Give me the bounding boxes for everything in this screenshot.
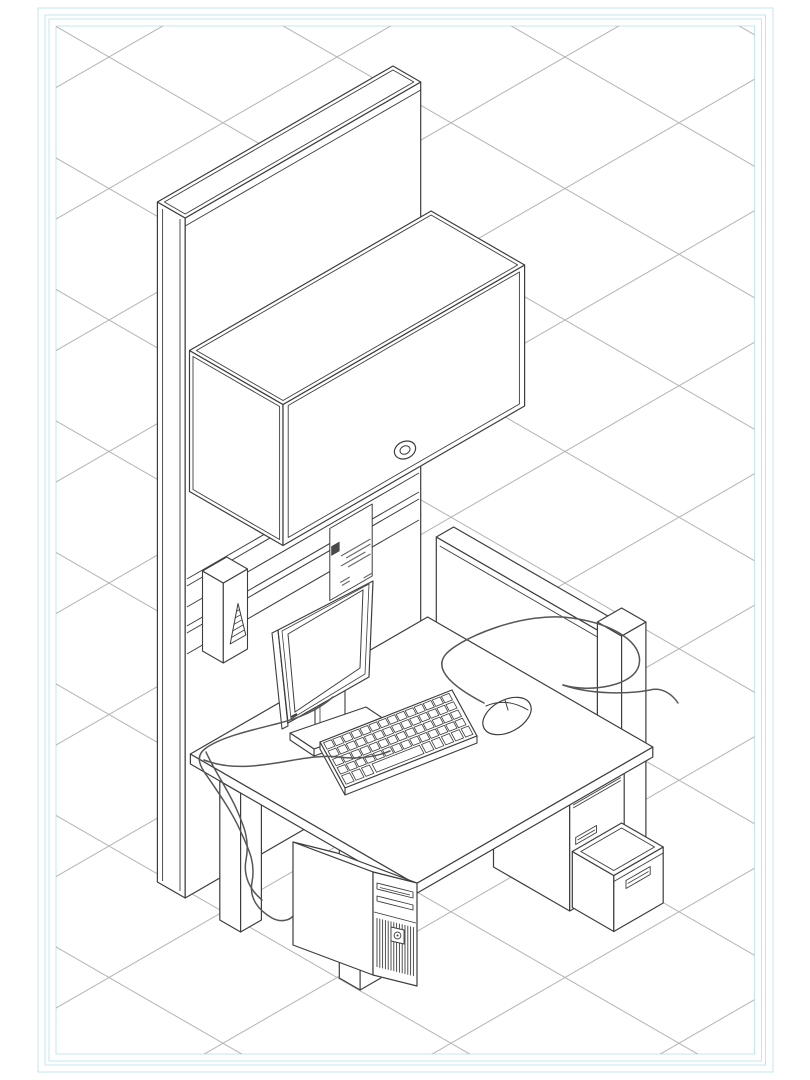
drawing-sheet xyxy=(0,0,810,1080)
isometric-drawing xyxy=(0,0,810,1080)
rail-accessory-box xyxy=(203,557,248,663)
